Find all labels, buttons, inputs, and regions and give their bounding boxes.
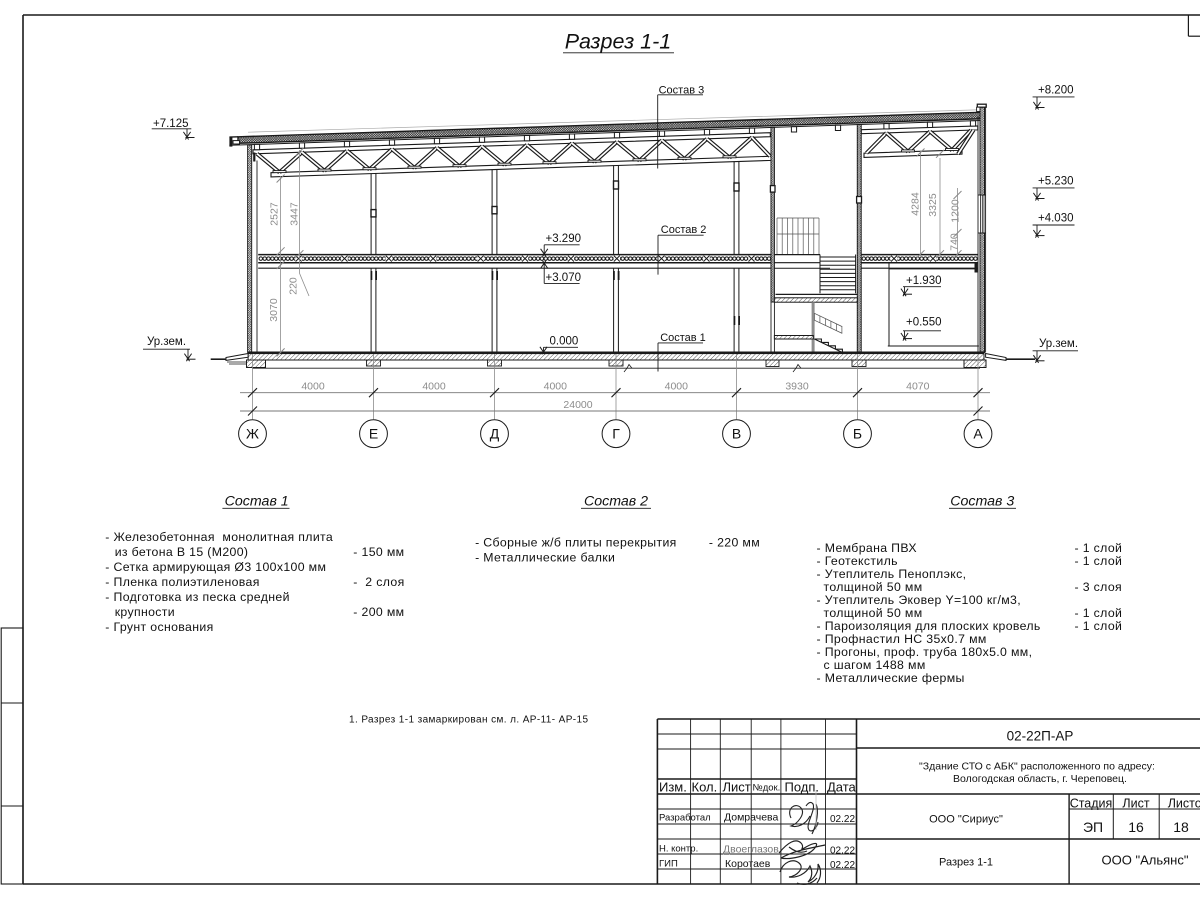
svg-text:+7.125: +7.125 [153, 118, 189, 130]
svg-text:Двоеглазов: Двоеглазов [723, 844, 779, 856]
svg-text:Подп.: Подп. [785, 780, 820, 795]
svg-text:с шагом 1488 мм: с шагом 1488 мм [824, 658, 926, 672]
svg-text:0.000: 0.000 [550, 335, 579, 347]
svg-text:02.22: 02.22 [830, 846, 855, 857]
svg-text:В: В [732, 426, 741, 442]
svg-text:1200: 1200 [950, 199, 962, 223]
svg-text:4000: 4000 [544, 380, 568, 392]
svg-text:- Мембрана ПВХ: - Мембрана ПВХ [817, 541, 917, 555]
svg-text:ООО "Альянс": ООО "Альянс" [1102, 853, 1189, 868]
svg-text:- Металлические фермы: - Металлические фермы [817, 671, 965, 685]
svg-text:Листов: Листов [1168, 797, 1200, 811]
svg-text:- Утеплитель Пеноплэкс,: - Утеплитель Пеноплэкс, [817, 567, 967, 581]
svg-text:№док.: №док. [753, 783, 781, 794]
svg-text:ЭП: ЭП [1083, 819, 1103, 835]
svg-text:Ж: Ж [246, 426, 259, 442]
svg-text:02.22: 02.22 [830, 814, 855, 825]
svg-text:+3.070: +3.070 [546, 272, 582, 284]
svg-text:16: 16 [1128, 819, 1144, 835]
svg-text:из бетона В 15 (М200): из бетона В 15 (М200) [115, 545, 249, 559]
svg-text:Коротаев: Коротаев [725, 858, 771, 870]
svg-text:Г: Г [612, 426, 620, 442]
svg-text:Разрез 1-1: Разрез 1-1 [939, 857, 993, 869]
svg-text:А: А [973, 426, 983, 442]
svg-text:- Прогоны, проф. труба 180х5.0: - Прогоны, проф. труба 180х5.0 мм, [817, 645, 1033, 659]
svg-text:- Утеплитель Эковер Y=100 кг/м: - Утеплитель Эковер Y=100 кг/м3, [817, 593, 1021, 607]
svg-text:4284: 4284 [909, 192, 921, 216]
svg-text:+4.030: +4.030 [1038, 213, 1074, 225]
svg-text:- 1 слой: - 1 слой [1075, 619, 1123, 633]
svg-text:02-22П-АР: 02-22П-АР [1007, 729, 1074, 744]
svg-text:- Сетка армирующая Ø3 100х100: - Сетка армирующая Ø3 100х100 мм [105, 560, 326, 574]
svg-text:ООО "Сириус": ООО "Сириус" [929, 814, 1003, 826]
svg-text:Состав 1: Состав 1 [225, 493, 289, 509]
svg-text:2527: 2527 [269, 202, 281, 226]
svg-text:3325: 3325 [927, 193, 939, 217]
svg-text:Разработал: Разработал [659, 813, 711, 824]
svg-text:- Железобетонная монолитная п: - Железобетонная монолитная плита [105, 530, 333, 544]
svg-text:- Пленка полиэтиленовая: - Пленка полиэтиленовая [105, 575, 259, 589]
svg-text:4070: 4070 [906, 380, 930, 392]
svg-text:- 220 мм: - 220 мм [709, 535, 760, 549]
svg-text:- 2 слоя: - 2 слоя [353, 575, 404, 589]
svg-text:Лист: Лист [1122, 797, 1149, 811]
svg-text:220: 220 [288, 277, 300, 295]
svg-text:Дата: Дата [827, 780, 857, 795]
svg-text:Состав 3: Состав 3 [950, 493, 1014, 509]
svg-text:+8.200: +8.200 [1038, 85, 1074, 97]
svg-text:- Сборные ж/б плиты перекрытия: - Сборные ж/б плиты перекрытия [475, 535, 677, 549]
svg-text:Ур.зем.: Ур.зем. [1039, 338, 1078, 350]
svg-text:- Металлические балки: - Металлические балки [475, 550, 615, 564]
svg-text:3070: 3070 [268, 298, 280, 322]
svg-text:Вологодская область, г. Черепо: Вологодская область, г. Череповец. [953, 773, 1127, 785]
svg-text:Н. контр.: Н. контр. [659, 844, 698, 855]
svg-text:+3.290: +3.290 [546, 233, 582, 245]
svg-text:Е: Е [369, 426, 378, 442]
svg-text:"Здание СТО с АБК" расположенн: "Здание СТО с АБК" расположенного по адр… [919, 761, 1155, 773]
svg-text:4000: 4000 [301, 380, 325, 392]
svg-text:- Пароизоляция для плоских кро: - Пароизоляция для плоских кровель [817, 619, 1041, 633]
svg-text:Стадия: Стадия [1070, 797, 1113, 811]
svg-text:Домрачева: Домрачева [724, 812, 779, 824]
svg-text:24000: 24000 [563, 399, 592, 411]
svg-text:Б: Б [853, 426, 862, 442]
svg-text:Кол.: Кол. [692, 780, 718, 795]
svg-text:- 1 слой: - 1 слой [1075, 606, 1123, 620]
svg-text:Д: Д [490, 426, 500, 442]
svg-text:Разрез 1-1: Разрез 1-1 [565, 30, 672, 54]
svg-text:толщиной 50 мм: толщиной 50 мм [824, 580, 923, 594]
svg-text:ГИП: ГИП [659, 859, 678, 870]
svg-text:4000: 4000 [665, 380, 689, 392]
svg-text:+1.930: +1.930 [906, 275, 942, 287]
svg-text:18: 18 [1173, 819, 1189, 835]
svg-text:- 200 мм: - 200 мм [353, 605, 404, 619]
svg-text:- 150 мм: - 150 мм [353, 545, 404, 559]
svg-text:1. Разрез 1-1 замаркирован см.: 1. Разрез 1-1 замаркирован см. л. АР-11-… [349, 715, 588, 726]
svg-text:02.22: 02.22 [830, 860, 855, 871]
svg-text:Состав 1: Состав 1 [660, 332, 706, 344]
svg-text:Лист: Лист [723, 780, 751, 795]
svg-text:- 1 слой: - 1 слой [1075, 554, 1123, 568]
svg-text:3447: 3447 [288, 202, 300, 226]
svg-text:+0.550: +0.550 [906, 317, 942, 329]
svg-text:- Профнастил НС 35х0.7 мм: - Профнастил НС 35х0.7 мм [817, 632, 987, 646]
svg-text:Состав 2: Состав 2 [584, 493, 648, 509]
svg-text:- Геотекстиль: - Геотекстиль [817, 554, 898, 568]
svg-text:Состав 2: Состав 2 [661, 224, 707, 236]
svg-text:- 1 слой: - 1 слой [1075, 541, 1123, 555]
svg-text:крупности: крупности [115, 605, 175, 619]
svg-text:- Подготовка из песка средней: - Подготовка из песка средней [105, 590, 290, 604]
svg-text:4000: 4000 [422, 380, 446, 392]
svg-text:Ур.зем.: Ур.зем. [147, 336, 186, 348]
svg-text:Изм.: Изм. [659, 780, 687, 795]
svg-text:толщиной 50 мм: толщиной 50 мм [824, 606, 923, 620]
svg-text:3930: 3930 [785, 380, 809, 392]
svg-text:- Грунт основания: - Грунт основания [105, 620, 213, 634]
svg-text:+5.230: +5.230 [1038, 176, 1074, 188]
svg-text:- 3 слоя: - 3 слоя [1075, 580, 1123, 594]
